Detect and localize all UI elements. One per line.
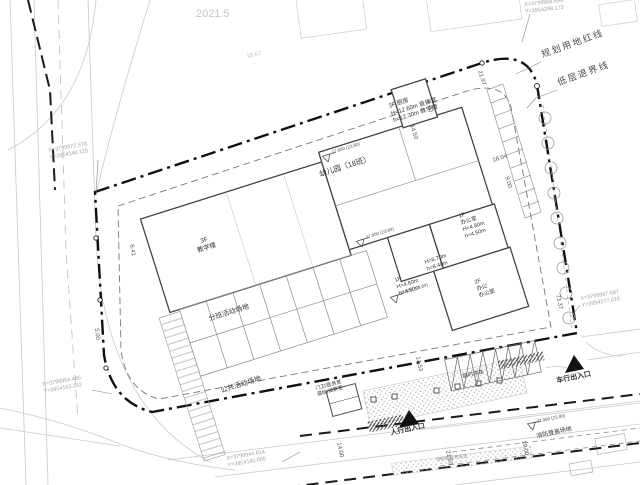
survey-date-note: 2021.5 (196, 8, 230, 22)
entrance-plaza (350, 351, 545, 432)
site-plan-drawing: 2021.5 规划用地红线 低层退界线 3F 厨房 H=12.60m 音体室 h… (0, 0, 640, 485)
terrace-steps (159, 311, 225, 461)
dim-5-00: 5.00 (93, 328, 100, 340)
vehicle-entrance-arrow (565, 355, 584, 373)
ramp-hatch (487, 84, 541, 218)
site-plan-linework (0, 0, 640, 485)
